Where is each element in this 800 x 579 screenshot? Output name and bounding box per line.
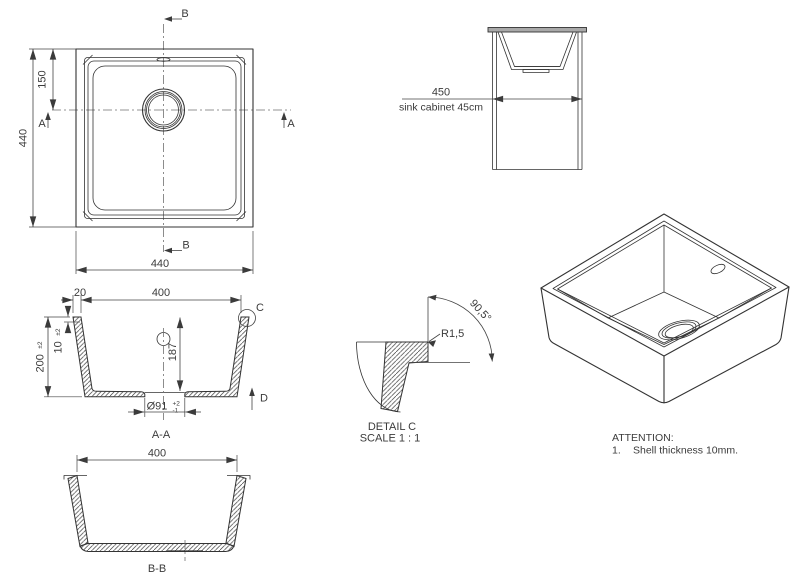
section-arrow-a-right [281,112,287,120]
dim-drain-tol-upper: +2 [173,401,181,408]
corner-chamfers [83,55,246,221]
attention-title: ATTENTION: [612,432,674,444]
dim-wall-thickness-tol: ±2 [55,328,62,336]
drawing-canvas: B B A A 440 150 440 [0,0,800,579]
dim-opening-width: 400 [152,287,170,299]
section-aa-caption: A-A [152,429,171,441]
rim-inner-line-1 [553,221,776,347]
attention-item-text: Shell thickness 10mm. [633,445,738,457]
dim-drain-tol-lower: -1 [173,408,179,415]
dim-rim-width: 20 [74,287,86,299]
rim-inner-line-2 [558,225,772,343]
sink-outer-edge [76,49,253,227]
section-bb-view: 400 B-B [64,448,250,576]
cabinet-caption: sink cabinet 45cm [399,102,483,114]
svg-text:200 ±2: 200 ±2 [31,341,48,372]
isometric-view [541,214,789,403]
detail-c-scale: SCALE 1 : 1 [360,433,421,445]
wall-bb-right [226,476,246,547]
cabinet-walls [493,32,583,170]
wall-section-right [185,317,249,397]
sink-bowl-bottom-edge [93,66,236,210]
section-arrow-b-top [164,16,172,22]
dim-drain-diameter: Ø91 [147,401,168,413]
svg-text:10 ±2: 10 ±2 [49,328,66,353]
section-arrow-b-bottom [164,248,172,254]
detail-c-callout-label: C [256,302,264,314]
sink-bowl-section [498,32,577,73]
section-bb-caption: B-B [148,563,166,575]
attention-item-number: 1. [612,445,621,457]
section-aa-view: 20 400 200 ±2 10 ±2 187 Ø91 +2 -1 C [31,287,269,441]
angle-value: 90,5° [467,297,493,324]
radius-value: R1,5 [441,328,464,340]
section-label-b-bottom: B [182,240,189,252]
rim-detail-section [381,342,428,412]
wall-section-left [73,317,145,397]
sink-opening-edge [88,61,241,215]
section-label-b-top: B [181,8,188,20]
cabinet-side-view: 450 sink cabinet 45cm [399,28,587,170]
dim-wall-thickness: 10 [53,341,65,353]
floor-bb [80,544,234,552]
rim-front-edges [541,287,789,356]
dim-section-height-tol: ±2 [37,341,44,349]
detail-c-title: DETAIL C [368,421,416,433]
dim-section-height: 200 [35,354,47,372]
dim-overall-height: 440 [18,129,30,147]
section-arrow-a-left [45,112,51,120]
overflow-hole-isometric [710,262,727,275]
dim-overall-width: 440 [151,258,169,270]
countertop-slab [488,28,587,33]
section-label-a-right: A [287,118,295,130]
sink-rim-edge [85,58,245,219]
direction-d-label: D [260,393,268,405]
top-view: B B A A 440 150 440 [18,8,296,274]
direction-d-arrow [249,388,255,397]
detail-c-view: 90,5° R1,5 DETAIL C SCALE 1 : 1 [357,295,495,445]
dim-drain-center: 150 [37,70,49,88]
section-label-a-left: A [38,118,46,130]
dim-inner-depth: 187 [167,343,179,361]
dim-cabinet-width: 450 [432,87,450,99]
dim-opening-width-bb: 400 [148,448,166,460]
wall-bb-left [68,476,88,547]
attention-note: ATTENTION: 1. Shell thickness 10mm. [612,432,738,457]
technical-drawing-page: B B A A 440 150 440 [0,0,800,579]
